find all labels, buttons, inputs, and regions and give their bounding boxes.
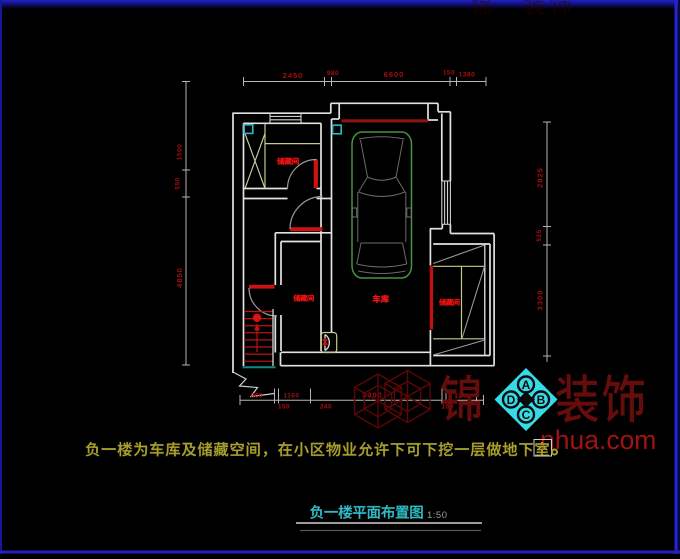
svg-text:150: 150: [278, 404, 290, 411]
svg-text:B: B: [537, 393, 546, 407]
svg-text:525: 525: [536, 229, 543, 241]
svg-text:1500: 1500: [177, 144, 184, 160]
svg-text:D: D: [507, 393, 516, 407]
svg-text:2825: 2825: [536, 167, 545, 188]
svg-text:C: C: [522, 408, 531, 422]
svg-text:1:50: 1:50: [427, 510, 448, 521]
svg-text:1380: 1380: [459, 72, 475, 79]
svg-text:6600: 6600: [384, 70, 405, 79]
svg-text:980: 980: [327, 70, 339, 77]
svg-text:1160: 1160: [283, 393, 299, 400]
svg-text:800: 800: [251, 393, 263, 400]
svg-text:550: 550: [175, 177, 182, 189]
svg-text:4850: 4850: [175, 267, 184, 288]
svg-text:A: A: [522, 378, 531, 392]
svg-text:3300: 3300: [536, 290, 545, 311]
svg-text:2450: 2450: [283, 71, 304, 80]
svg-text:150: 150: [443, 70, 455, 77]
svg-text:240: 240: [320, 404, 332, 411]
